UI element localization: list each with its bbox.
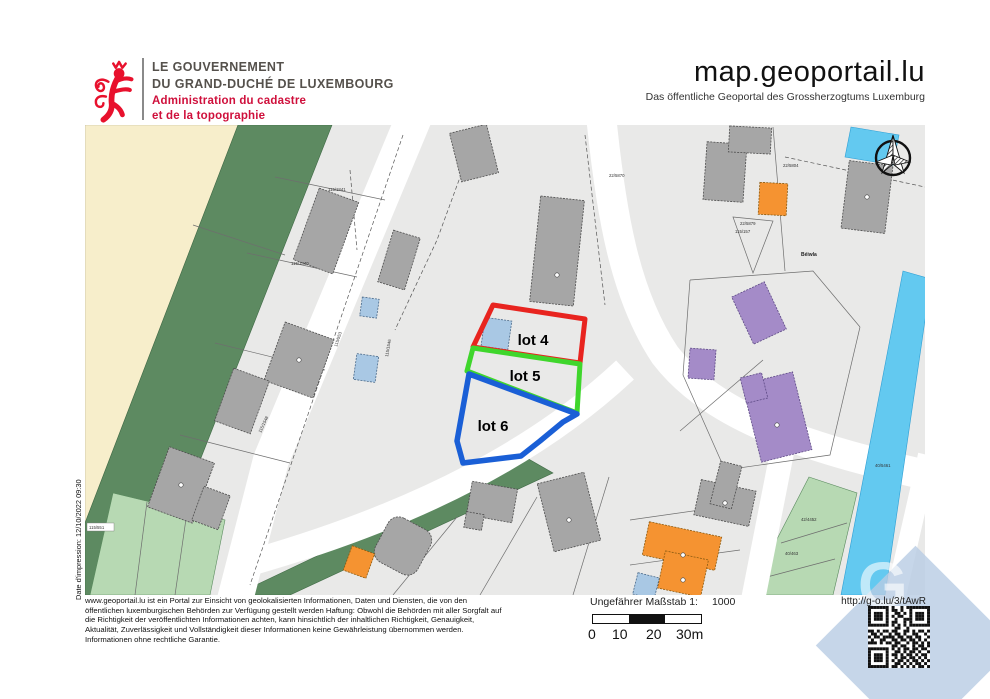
logo-divider xyxy=(142,58,144,120)
disclaimer-text: www.geoportail.lu ist ein Portal zur Ein… xyxy=(85,596,563,644)
administration-line-2: et de la topographie xyxy=(152,109,394,125)
scale-bar-segment xyxy=(665,615,701,623)
disclaimer-line: Informationen ohne rechtliche Garantie. xyxy=(85,635,563,645)
lot-5-label: lot 5 xyxy=(510,368,541,385)
page-title: map.geoportail.lu xyxy=(646,56,925,89)
scale-label: Ungefährer Maßstab 1: xyxy=(590,596,698,608)
svg-text:42/4452: 42/4452 xyxy=(801,517,817,522)
print-date-note: Date d'impression: 12/10/2022 09:30 xyxy=(74,430,83,600)
disclaimer-line: www.geoportail.lu ist ein Portal zur Ein… xyxy=(85,596,563,606)
svg-text:22/5804: 22/5804 xyxy=(783,163,799,168)
qr-code xyxy=(868,606,930,668)
scale-bar-segment xyxy=(629,615,665,623)
print-page: LE GOUVERNEMENT DU GRAND-DUCHÉ DE LUXEMB… xyxy=(0,0,990,699)
svg-text:115/157: 115/157 xyxy=(735,229,751,234)
svg-text:115/1840: 115/1840 xyxy=(291,261,309,266)
disclaimer-line: öffentlichen luxemburgischen Behörden zu… xyxy=(85,606,563,616)
scale-value: 1000 xyxy=(712,596,735,608)
map-canvas: 115/1841 115/1840 115/553 115/1546 22/58… xyxy=(85,125,925,595)
disclaimer-line: die Richtigkeit der veröffentlichten Inf… xyxy=(85,615,563,625)
scale-text: Ungefährer Maßstab 1:1000 xyxy=(590,596,735,608)
svg-text:Béiwla: Béiwla xyxy=(801,252,817,258)
scale-bar-segment xyxy=(593,615,629,623)
lot-6-label: lot 6 xyxy=(478,418,509,435)
scale-bar xyxy=(592,614,702,624)
share-url: http://g-o.lu/3/tAwR xyxy=(790,596,926,607)
disclaimer-line: Aktualität, Zuverlässigkeit und Vollstän… xyxy=(85,625,563,635)
gov-line-2: DU GRAND-DUCHÉ DE LUXEMBOURG xyxy=(152,76,394,93)
luxembourg-lion-icon xyxy=(84,57,136,123)
gov-line-1: LE GOUVERNEMENT xyxy=(152,59,394,76)
svg-text:40/463: 40/463 xyxy=(785,551,799,556)
svg-text:40/5461: 40/5461 xyxy=(875,463,891,468)
page-subtitle: Das öffentliche Geoportal des Grossherzo… xyxy=(646,91,925,103)
government-logo: LE GOUVERNEMENT DU GRAND-DUCHÉ DE LUXEMB… xyxy=(84,57,394,125)
svg-text:22/5870: 22/5870 xyxy=(609,173,625,178)
svg-text:115/1841: 115/1841 xyxy=(328,187,346,192)
svg-text:22/5879: 22/5879 xyxy=(740,221,756,226)
svg-text:115/551: 115/551 xyxy=(89,525,105,530)
administration-line-1: Administration du cadastre xyxy=(152,94,394,110)
cadastral-map: 115/1841 115/1840 115/553 115/1546 22/58… xyxy=(85,125,925,595)
lot-4-label: lot 4 xyxy=(518,332,549,349)
